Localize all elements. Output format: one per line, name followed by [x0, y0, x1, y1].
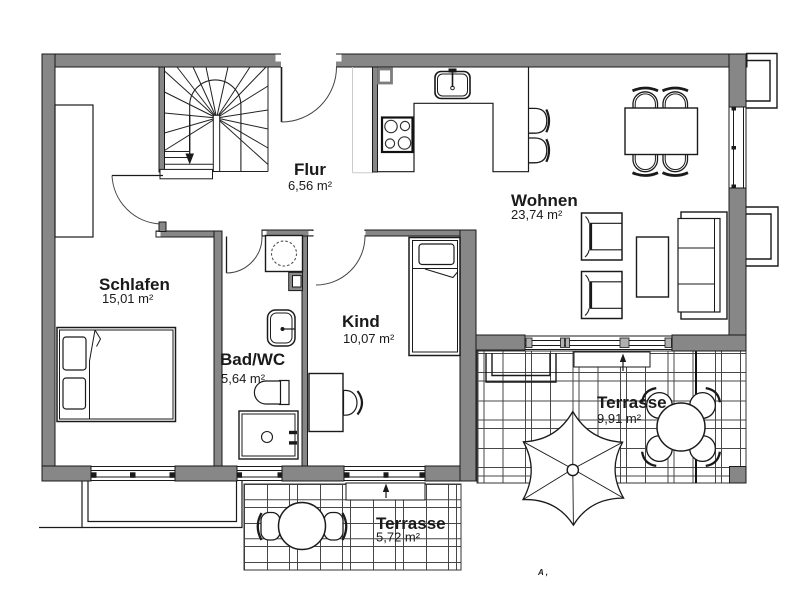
svg-text:15,01 m²: 15,01 m² — [102, 291, 154, 306]
svg-text:A ,: A , — [537, 568, 548, 577]
svg-text:6,56 m²: 6,56 m² — [288, 178, 333, 193]
svg-text:23,74 m²: 23,74 m² — [511, 207, 563, 222]
svg-text:5,64 m²: 5,64 m² — [221, 371, 266, 386]
svg-text:10,07 m²: 10,07 m² — [343, 331, 395, 346]
svg-text:Bad/WC: Bad/WC — [220, 350, 285, 369]
svg-text:9,91 m²: 9,91 m² — [597, 411, 642, 426]
svg-text:Kind: Kind — [342, 312, 380, 331]
svg-text:5,72 m²: 5,72 m² — [376, 530, 421, 545]
svg-text:Terrasse: Terrasse — [597, 393, 667, 412]
svg-text:Flur: Flur — [294, 160, 326, 179]
